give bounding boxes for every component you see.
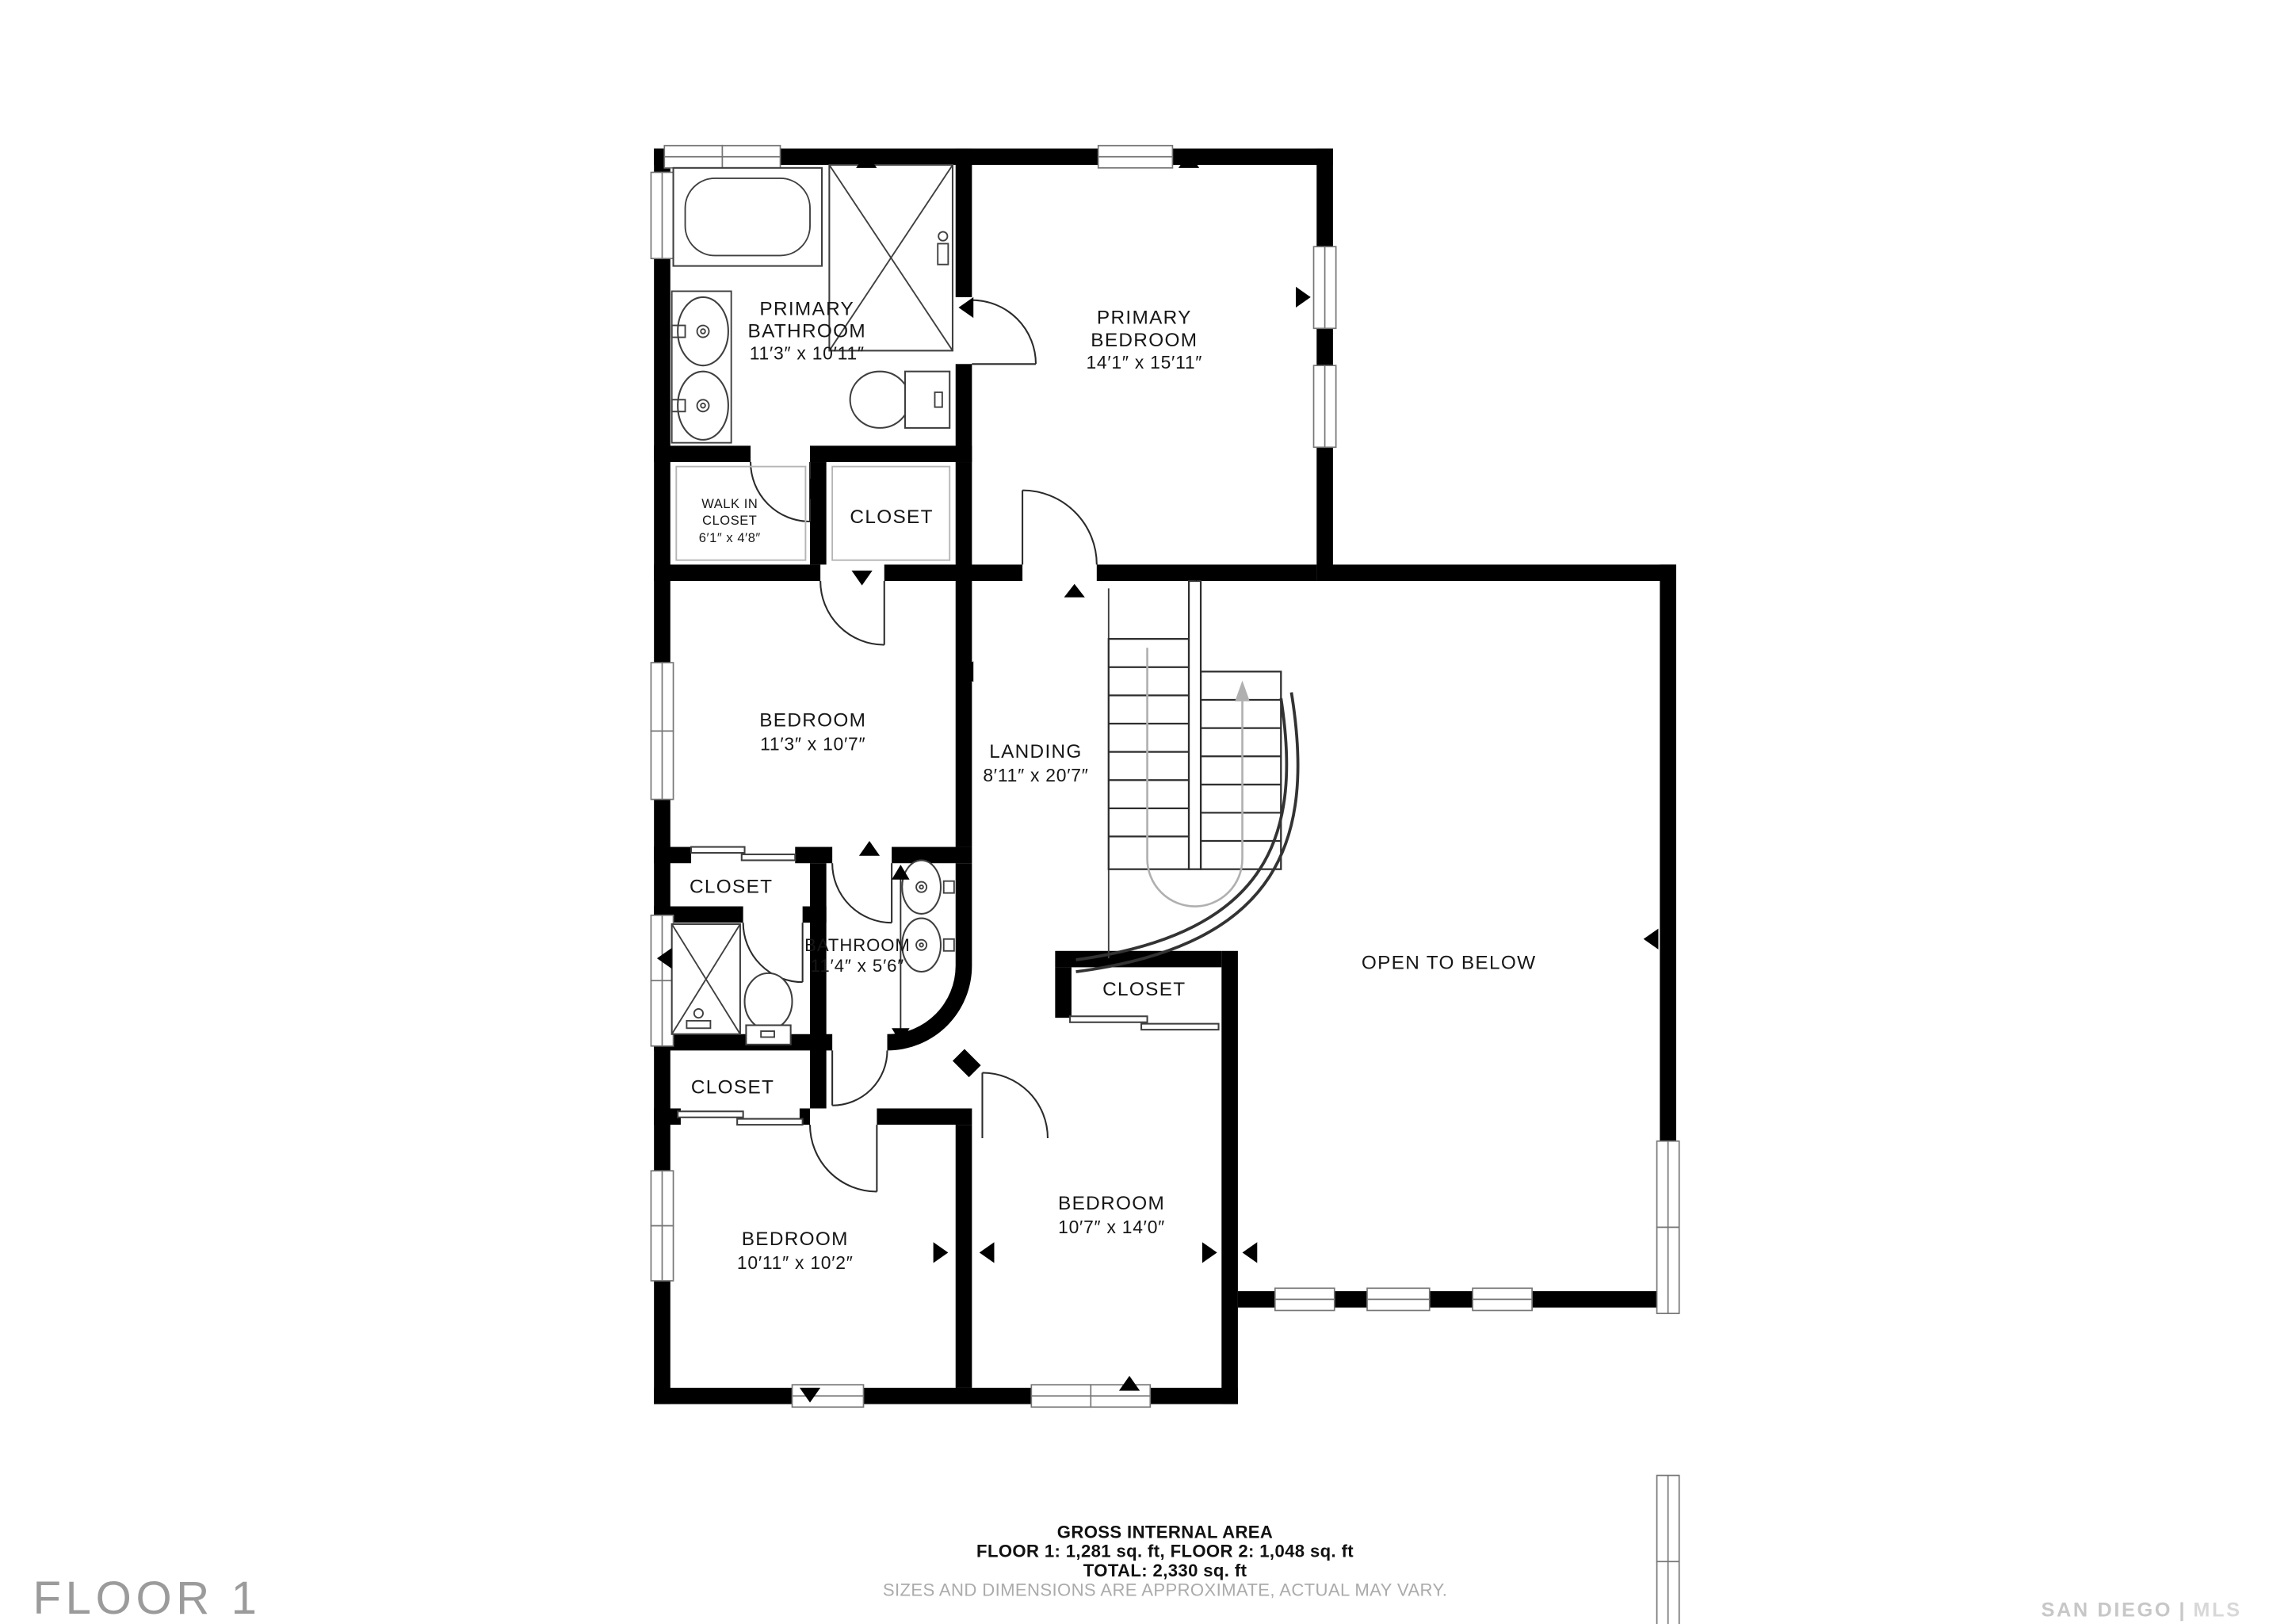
window-open-bottom-1 [1275,1288,1335,1310]
label-primary-bedroom-2: BEDROOM [1091,330,1198,351]
window-left-bedroom-2 [651,731,673,799]
window-primary-right-1 [1314,246,1336,328]
label-bathroom: BATHROOM [804,935,911,955]
label-closet-lower: CLOSET [691,1077,774,1099]
footer: GROSS INTERNAL AREA FLOOR 1: 1,281 sq. f… [883,1522,1447,1599]
label-walk-in-closet-1: WALK IN [701,497,758,511]
label-walk-in-closet-2: CLOSET [702,514,757,528]
watermark: SAN DIEGO | MLS [2041,1599,2241,1622]
label-closet-primary: CLOSET [850,506,933,528]
watermark-brand-left: SAN DIEGO [2041,1599,2172,1622]
toilet-lower [745,973,793,1045]
window-open-right-1 [1657,1141,1679,1228]
window-open-right-4 [1657,1561,1679,1624]
window-primary-right-2 [1314,365,1336,447]
label-primary-bathroom-dims: 11′3″ x 10′11″ [750,343,865,364]
window-open-right-2 [1657,1227,1679,1313]
label-primary-bedroom-1: PRIMARY [1097,308,1192,329]
door-bedroom-left [820,581,884,645]
window-open-right-3 [1657,1476,1679,1562]
label-closet-hall: CLOSET [690,877,773,898]
label-bedroom-bottom-mid: BEDROOM [1058,1193,1165,1214]
door-primary-bathroom [972,300,1036,365]
door-bathroom-top [832,863,892,923]
window-left-shower-2 [651,980,673,1045]
label-bedroom-left: BEDROOM [759,710,866,732]
label-primary-bathroom-1: PRIMARY [759,298,854,319]
door-bathroom-bottom [832,1050,887,1105]
window-top-primary-bedroom [1098,146,1173,168]
window-bottom-bedroom-mid-1 [1031,1385,1091,1407]
window-left-bedroom-bl-1 [651,1171,673,1225]
toilet-primary [850,372,950,428]
floor-plan-page: { "floor_label": "FLOOR 1", "watermark":… [0,0,2296,1624]
window-top-bath-2 [722,146,780,168]
door-bedroom-bottom-left [810,1125,877,1191]
sliding-door-closet-lower [678,1111,802,1125]
chamfer-wall [953,1049,981,1078]
label-open-to-below: OPEN TO BELOW [1362,952,1537,973]
window-open-bottom-3 [1473,1288,1532,1310]
window-left-bathtub [651,172,673,258]
floor-number-label: FLOOR 1 [33,1572,262,1624]
watermark-divider: | [2179,1599,2187,1622]
vanity-bathroom [902,860,954,972]
label-bedroom-left-dims: 11′3″ x 10′7″ [760,734,865,755]
footer-areas: FLOOR 1: 1,281 sq. ft, FLOOR 2: 1,048 sq… [976,1542,1354,1561]
watermark-brand-right: MLS [2193,1599,2241,1622]
label-primary-bedroom-dims: 14′1″ x 15′11″ [1086,352,1202,373]
label-landing: LANDING [989,741,1082,762]
window-top-bath-1 [664,146,722,168]
window-left-bedroom-1 [651,663,673,731]
door-primary-bedroom [1022,491,1097,565]
shower-lower [672,924,740,1034]
stair-center-rail [1189,581,1201,869]
window-left-shower-1 [651,915,673,980]
footer-disclaimer: SIZES AND DIMENSIONS ARE APPROXIMATE, AC… [883,1580,1447,1599]
window-open-bottom-2 [1367,1288,1430,1310]
bathtub [674,168,822,266]
door-bedroom-bottom-mid [982,1073,1047,1138]
footer-title: GROSS INTERNAL AREA [1057,1522,1273,1542]
footer-total: TOTAL: 2,330 sq. ft [1083,1561,1247,1580]
label-primary-bathroom-2: BATHROOM [748,321,866,342]
window-bottom-bedroom-mid-2 [1091,1385,1150,1407]
label-bedroom-bottom-mid-dims: 10′7″ x 14′0″ [1058,1217,1165,1237]
floor-plan-svg: PRIMARY BATHROOM 11′3″ x 10′11″ PRIMARY … [0,0,2296,1624]
label-closet-mid: CLOSET [1102,979,1186,1000]
sliding-door-closet-hall [691,847,795,861]
label-bedroom-bottom-left-dims: 10′11″ x 10′2″ [737,1252,854,1273]
label-bedroom-bottom-left: BEDROOM [742,1229,849,1250]
label-walk-in-closet-dims: 6′1″ x 4′8″ [699,531,761,545]
staircase [1076,581,1298,972]
label-bathroom-dims: 11′4″ x 5′6″ [811,956,904,976]
sliding-door-closet-mid [1070,1016,1218,1030]
vanity-primary [672,291,732,442]
door-walk-in-closet [751,462,810,522]
window-left-bedroom-bl-2 [651,1226,673,1281]
label-landing-dims: 8′11″ x 20′7″ [983,765,1088,785]
